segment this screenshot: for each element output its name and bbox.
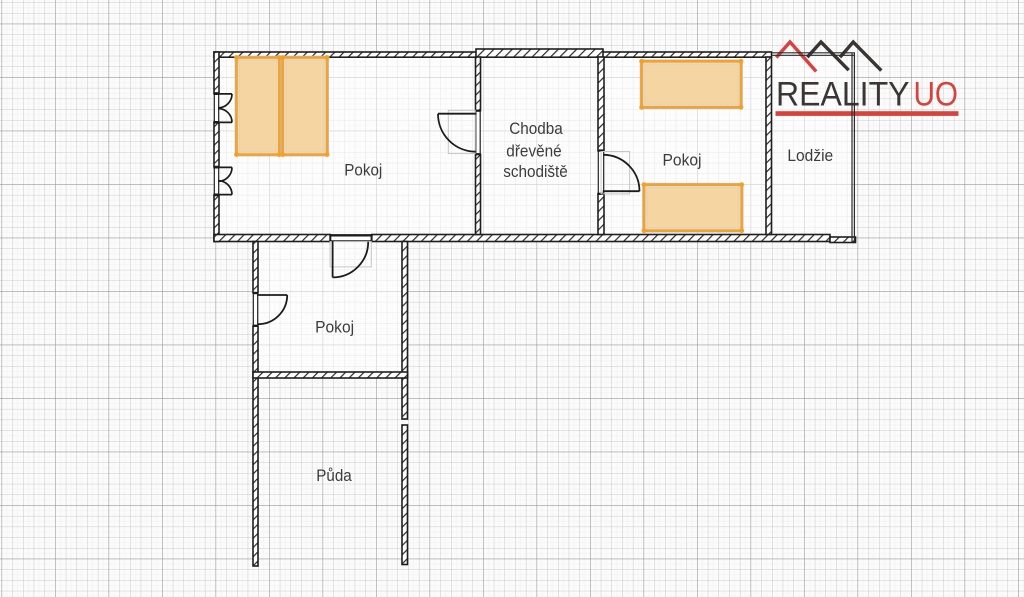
- svg-text:dřevěné: dřevěné: [506, 142, 561, 160]
- svg-text:Pokoj: Pokoj: [344, 161, 382, 179]
- svg-text:Pokoj: Pokoj: [315, 318, 354, 336]
- svg-text:Pokoj: Pokoj: [663, 152, 702, 170]
- svg-text:Lodžie: Lodžie: [787, 147, 833, 165]
- svg-text:Půda: Půda: [316, 467, 352, 485]
- svg-text:REALITY: REALITY: [776, 76, 910, 114]
- svg-text:schodiště: schodiště: [503, 163, 568, 181]
- svg-text:Chodba: Chodba: [509, 120, 563, 138]
- svg-text:UO: UO: [914, 76, 959, 114]
